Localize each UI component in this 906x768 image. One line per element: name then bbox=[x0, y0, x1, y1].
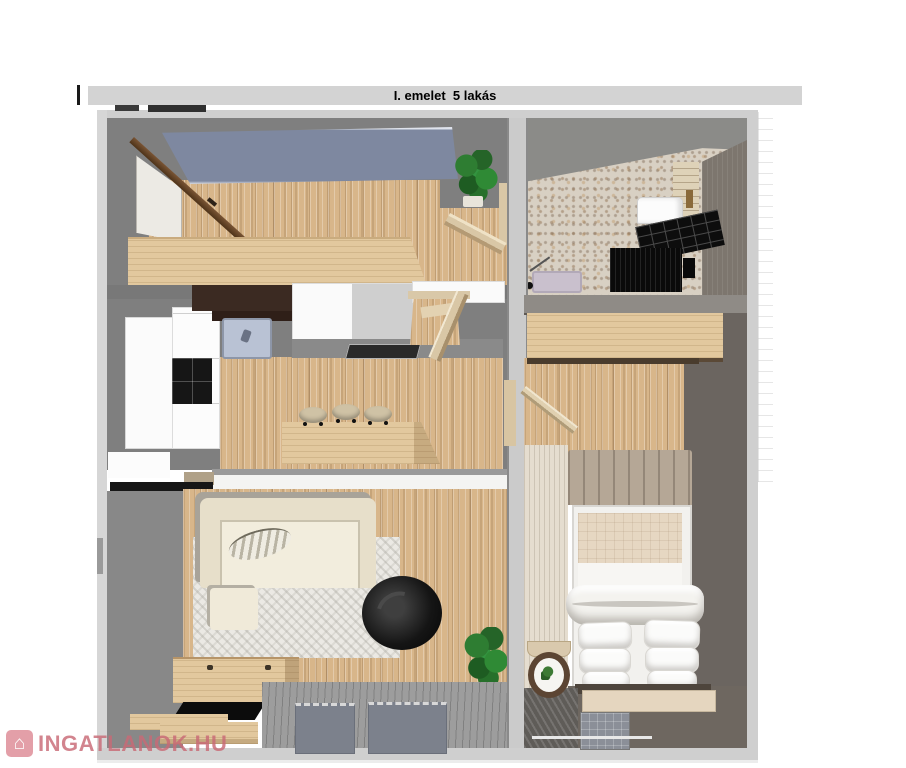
bed-pillow bbox=[644, 619, 701, 650]
pillar-inset bbox=[686, 190, 693, 208]
white-shelf-band bbox=[212, 475, 507, 490]
wall-outer-right bbox=[747, 110, 758, 760]
bedroom-grid-mat bbox=[580, 712, 630, 750]
bed-duvet-fold bbox=[566, 585, 704, 625]
plant-pot bbox=[463, 196, 483, 207]
kitchen-counter-top bbox=[292, 283, 414, 341]
floorplan-canvas: I. emelet 5 lakás ⌂ INGATLANOK.HU bbox=[0, 0, 906, 768]
potted-plant-icon bbox=[452, 150, 500, 202]
bed-pillow bbox=[578, 621, 633, 651]
room1-door-frame-strip bbox=[499, 183, 507, 245]
bathroom-sink bbox=[532, 271, 582, 293]
kitchen-dark-upper-cabinet bbox=[192, 285, 292, 311]
black-armchair bbox=[362, 576, 442, 650]
threshold-line bbox=[532, 736, 652, 739]
black-cabinet-panel bbox=[610, 248, 682, 292]
wall-left-notch bbox=[97, 538, 103, 574]
house-icon: ⌂ bbox=[6, 730, 33, 757]
kitchen-cabinet-patch bbox=[108, 452, 170, 478]
wardrobe-underside bbox=[527, 358, 699, 364]
breakfast-bar bbox=[282, 422, 440, 464]
wall-outer-left bbox=[97, 110, 107, 760]
bedroom-door-jamb bbox=[504, 380, 516, 446]
furniture-peek-strip bbox=[115, 104, 139, 111]
page-title: I. emelet 5 lakás bbox=[394, 88, 497, 103]
bed-blanket bbox=[578, 513, 682, 563]
bar-chair bbox=[332, 404, 360, 420]
floorplan-title-bar: I. emelet 5 lakás bbox=[88, 86, 802, 105]
terrace-mat bbox=[295, 703, 355, 754]
kitchen-hob bbox=[345, 344, 421, 359]
terrace-mat bbox=[368, 702, 447, 754]
potted-plant-icon bbox=[463, 627, 509, 689]
wall-outer-bottom-shadow bbox=[97, 760, 758, 763]
bed-footboard bbox=[582, 690, 716, 712]
bed-headboard bbox=[568, 450, 692, 505]
blue-accent-panel bbox=[162, 127, 458, 184]
kitchen-tall-cabinet bbox=[125, 317, 174, 449]
living-left-wall-zone bbox=[107, 491, 183, 748]
room1-long-counter bbox=[128, 237, 428, 289]
bedroom-top-wall bbox=[524, 295, 747, 315]
black-side-box bbox=[683, 258, 695, 278]
watermark-brand-text: INGATLANOK.HU bbox=[38, 731, 227, 757]
round-planter bbox=[528, 652, 570, 698]
background-grid-strip bbox=[758, 112, 773, 482]
ottoman bbox=[210, 588, 258, 630]
bar-chair bbox=[364, 406, 392, 422]
kitchen-cooktop bbox=[172, 358, 212, 404]
bar-chair bbox=[299, 407, 327, 423]
wardrobe bbox=[527, 313, 723, 362]
brand-watermark: ⌂ INGATLANOK.HU bbox=[6, 730, 227, 757]
title-tick-mark bbox=[77, 85, 80, 105]
